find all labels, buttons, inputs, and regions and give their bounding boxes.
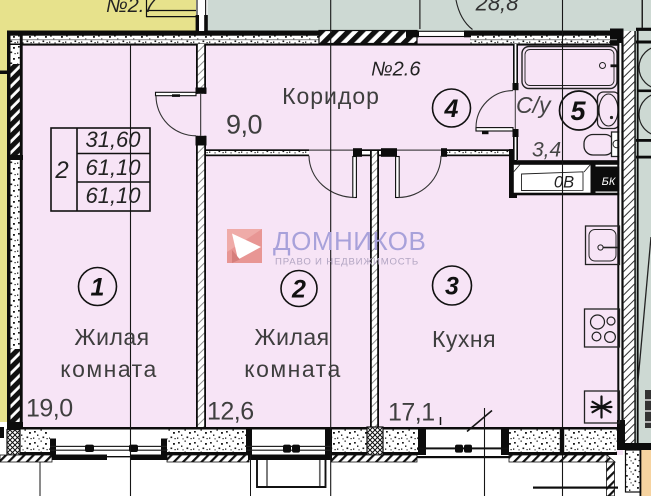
svg-text:Коридор: Коридор bbox=[282, 83, 380, 109]
svg-text:Кухня: Кухня bbox=[432, 326, 496, 352]
svg-text:БК: БК bbox=[602, 176, 616, 188]
svg-text:№2.6: №2.6 bbox=[371, 59, 421, 81]
svg-text:5: 5 bbox=[570, 96, 586, 126]
svg-text:комната: комната bbox=[244, 356, 341, 382]
svg-text:№2.7: №2.7 bbox=[106, 0, 156, 17]
svg-text:комната: комната bbox=[60, 356, 157, 382]
svg-text:2: 2 bbox=[54, 157, 68, 184]
svg-text:Жилая: Жилая bbox=[254, 324, 329, 350]
svg-text:17,1: 17,1 bbox=[388, 399, 435, 427]
svg-text:4: 4 bbox=[444, 95, 459, 123]
svg-text:С/у: С/у bbox=[516, 92, 552, 118]
svg-text:9,0: 9,0 bbox=[226, 110, 262, 140]
svg-text:12,6: 12,6 bbox=[207, 398, 254, 426]
svg-text:1: 1 bbox=[91, 274, 105, 302]
svg-text:0В: 0В bbox=[554, 174, 574, 192]
svg-text:ДОМНИКОВ: ДОМНИКОВ bbox=[273, 226, 426, 256]
svg-text:3,4: 3,4 bbox=[532, 139, 561, 162]
svg-text:28,8: 28,8 bbox=[475, 0, 520, 16]
svg-text:61,10: 61,10 bbox=[85, 155, 141, 180]
svg-text:ПРАВО И НЕДВИЖИМОСТЬ: ПРАВО И НЕДВИЖИМОСТЬ bbox=[275, 257, 419, 268]
svg-text:31,60: 31,60 bbox=[85, 127, 141, 152]
svg-text:Жилая: Жилая bbox=[74, 324, 149, 350]
svg-text:61,10: 61,10 bbox=[85, 183, 141, 208]
svg-text:2: 2 bbox=[291, 276, 306, 304]
svg-text:19,0: 19,0 bbox=[26, 395, 73, 423]
svg-text:3: 3 bbox=[445, 273, 459, 301]
